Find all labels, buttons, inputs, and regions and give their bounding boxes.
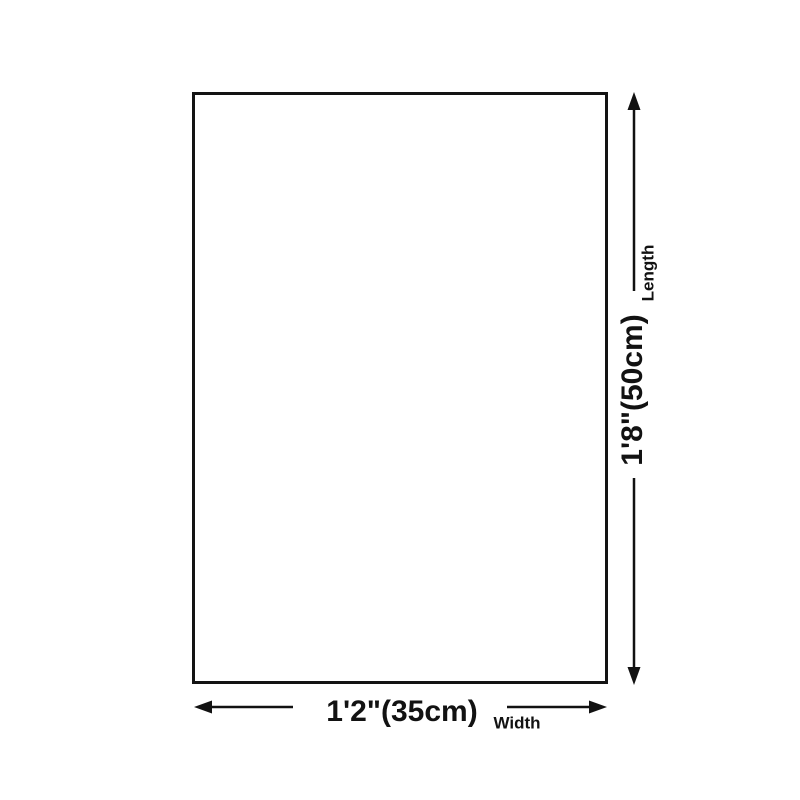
width-axis-label: Width xyxy=(493,715,540,732)
dimension-arrows xyxy=(0,0,800,800)
length-axis-label: Length xyxy=(640,245,657,302)
width-dimension-value: 1'2"(35cm) xyxy=(326,697,477,727)
length-dimension-value: 1'8"(50cm) xyxy=(618,314,648,465)
dimension-diagram: 1'8"(50cm) Length 1'2"(35cm) Width xyxy=(0,0,800,800)
